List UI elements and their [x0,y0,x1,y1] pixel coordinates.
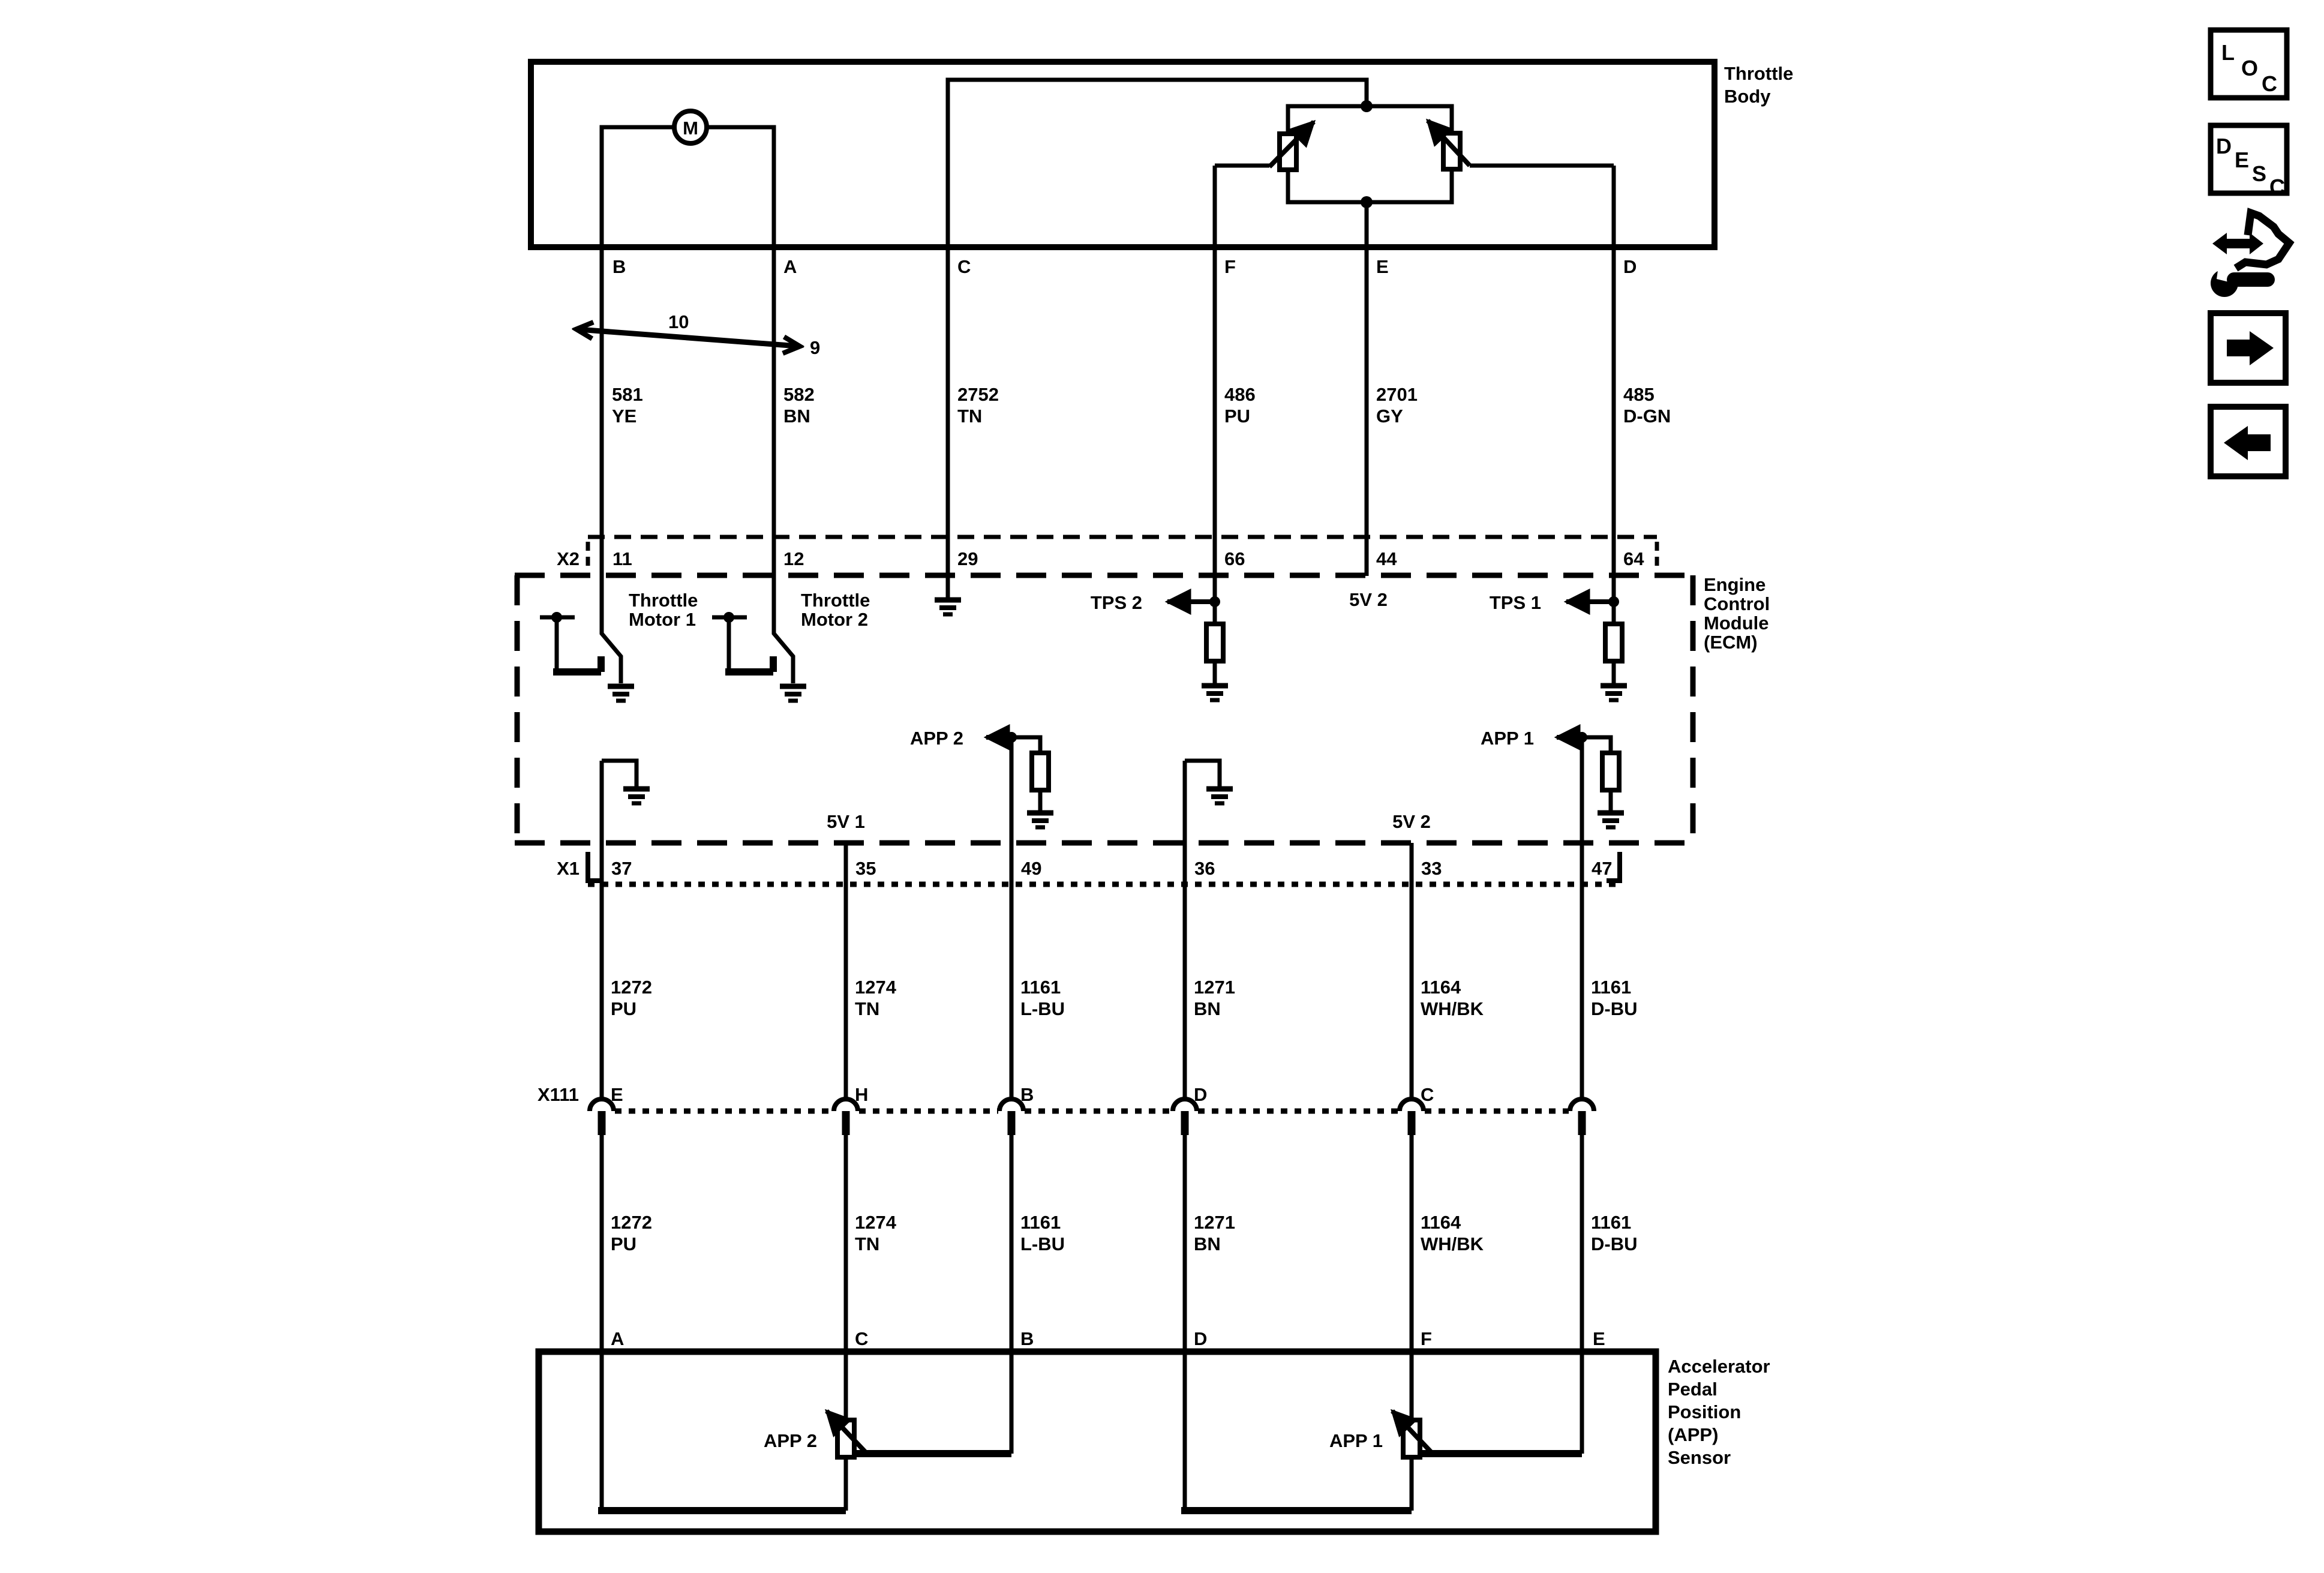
tps2-input [1167,537,1228,700]
connector-x1: X1 37 35 49 36 33 47 [557,852,1620,884]
desc-letter: C [2269,175,2285,199]
wire-color: D-BU [1591,1233,1638,1254]
app2-input-label: APP 2 [910,728,963,749]
throttle-body-label: Throttle [1724,63,1793,84]
pin-number: 12 [783,548,804,569]
app2-low-ref-ground [602,761,650,1100]
pin-number: 66 [1224,548,1245,569]
pin-letter: F [1224,256,1236,277]
harness-wires-top [602,166,1614,537]
wire-labels-middle: 1272 PU 1274 TN 1161 L-BU 1271 BN 1164 W… [611,977,1638,1019]
tps2-label: TPS 2 [1091,592,1142,613]
wire-color: WH/BK [1421,998,1484,1019]
circuit-number: 485 [1623,384,1655,405]
ecm-label: (ECM) [1704,632,1758,653]
tm2-label: Motor 2 [801,609,868,630]
circuit-number: 1271 [1194,1212,1235,1233]
circuit-number: 1164 [1421,1212,1461,1233]
throttle-body-box: M [531,62,1715,576]
wiring-diagram-canvas: M Throttle Body B A C F E D 10 9 [0,0,2324,1573]
callout-10: 10 [668,311,689,332]
circuit-number: 2752 [957,384,999,405]
app1-input-label: APP 1 [1481,728,1534,749]
wire-color: BN [1194,998,1221,1019]
loc-button[interactable]: L O C [2211,30,2287,98]
motor-label: M [683,118,698,139]
next-button[interactable] [2211,313,2286,383]
connector-x2-label: X2 [557,548,580,569]
app-sensor-label: Position [1668,1401,1741,1422]
app2-input [986,732,1053,1100]
pin-number: 47 [1592,858,1612,879]
wire-color: L-BU [1020,998,1065,1019]
loc-letter: C [2262,71,2277,96]
wire-color: PU [611,998,636,1019]
wire-color: D-GN [1623,406,1671,427]
app-sensor-label: (APP) [1668,1424,1718,1445]
connector-x2: X2 11 12 29 66 44 64 [557,537,1657,571]
tps1-label: TPS 1 [1490,592,1541,613]
circuit-number: 581 [612,384,643,405]
tps1-input [1566,537,1627,700]
pin-number: 37 [611,858,632,879]
back-button[interactable] [2211,407,2286,476]
wire-color: BN [783,406,810,427]
pin-letter: C [957,256,971,277]
tm2-label: Throttle [801,590,870,611]
app-sensor-pin-letters: A C B D F E [611,1328,1605,1349]
pin-letter: E [1593,1328,1605,1349]
app-sensor-label: Sensor [1668,1447,1731,1468]
desc-letter: E [2235,148,2249,172]
callout-9: 9 [810,337,820,358]
app1-low-ref-ground [1185,761,1233,1100]
app2-pot-label: APP 2 [764,1430,817,1451]
wire-color: GY [1376,406,1403,427]
pin-number: 64 [1623,548,1644,569]
circuit-number: 582 [783,384,815,405]
ecm-label: Control [1704,593,1770,614]
pin-number: 33 [1421,858,1442,879]
throttle-body-pin-letters: B A C F E D [612,256,1637,277]
5v1-supply-label: 5V 1 [827,811,865,832]
circuit-number: 1161 [1020,1212,1061,1233]
circuit-number: 1272 [611,1212,652,1233]
double-arrow-icon [2212,233,2263,254]
tm1-label: Motor 1 [629,609,696,630]
tm1-label: Throttle [629,590,698,611]
wire-color: D-BU [1591,998,1638,1019]
pin-letter: A [611,1328,624,1349]
5v2-supply-label: 5V 2 [1392,811,1431,832]
circuit-number: 1164 [1421,977,1461,998]
connector-x111: X111 E H B D C [538,1084,1594,1135]
pin-letter: F [1421,1328,1432,1349]
circuit-number: 2701 [1376,384,1418,405]
circuit-number: 1161 [1020,977,1061,998]
loc-letter: L [2221,40,2235,65]
circuit-number: 1161 [1591,1212,1631,1233]
pin-letter: E [1376,256,1389,277]
circuit-number: 486 [1224,384,1256,405]
wire-color: WH/BK [1421,1233,1484,1254]
app1-pot-label: APP 1 [1329,1430,1383,1451]
pin-number: 29 [957,548,978,569]
pin-letter: B [1020,1328,1034,1349]
desc-button[interactable]: D E S C [2211,125,2287,199]
junction-dot [1361,100,1373,112]
5v2-supply-label: 5V 2 [1349,589,1388,610]
circuit-number: 1274 [855,1212,897,1233]
pin-number: 35 [855,858,876,879]
pin-letter: B [612,256,626,277]
wire-c-feed [948,80,1367,537]
app-sensor-label: Accelerator [1668,1356,1770,1377]
app-sensor-box [539,1352,1656,1532]
pin-number: 11 [612,548,632,569]
wire-color: TN [957,406,982,427]
pin-letter: A [783,256,797,277]
ecm-label: Engine [1704,574,1765,595]
circuit-number: 1271 [1194,977,1235,998]
service-tools-icon[interactable] [2211,213,2289,297]
desc-letter: S [2252,161,2266,186]
pin-letter: C [855,1328,868,1349]
wire-callout: 10 9 [578,311,820,358]
connector-x1-label: X1 [557,858,580,879]
circuit-number: 1272 [611,977,652,998]
circuit-number: 1274 [855,977,897,998]
pin-number: 49 [1021,858,1041,879]
desc-letter: D [2216,134,2232,158]
connector-x111-label: X111 [538,1084,579,1105]
circuit-number: 1161 [1591,977,1631,998]
pin-letter: D [1623,256,1637,277]
wire-color: BN [1194,1233,1221,1254]
pin-letter: D [1194,1328,1207,1349]
wire-color: YE [612,406,636,427]
wire-color: PU [1224,406,1250,427]
wire-labels-bottom: 1272 PU 1274 TN 1161 L-BU 1271 BN 1164 W… [611,1212,1638,1254]
pin-number: 44 [1376,548,1397,569]
wire-color: TN [855,1233,879,1254]
loc-letter: O [2241,56,2258,80]
app1-input [1557,732,1624,1100]
app-sensor-label: Pedal [1668,1379,1718,1400]
wire-motor-a [707,127,774,537]
wire-color: PU [611,1233,636,1254]
throttle-body-label: Body [1724,86,1771,107]
wire-color: L-BU [1020,1233,1065,1254]
wire-labels-top: 581 YE 582 BN 2752 TN 486 PU 2701 GY 485… [612,384,1671,427]
ecm-label: Module [1704,613,1769,634]
wire-color: TN [855,998,879,1019]
pin-number: 36 [1194,858,1215,879]
